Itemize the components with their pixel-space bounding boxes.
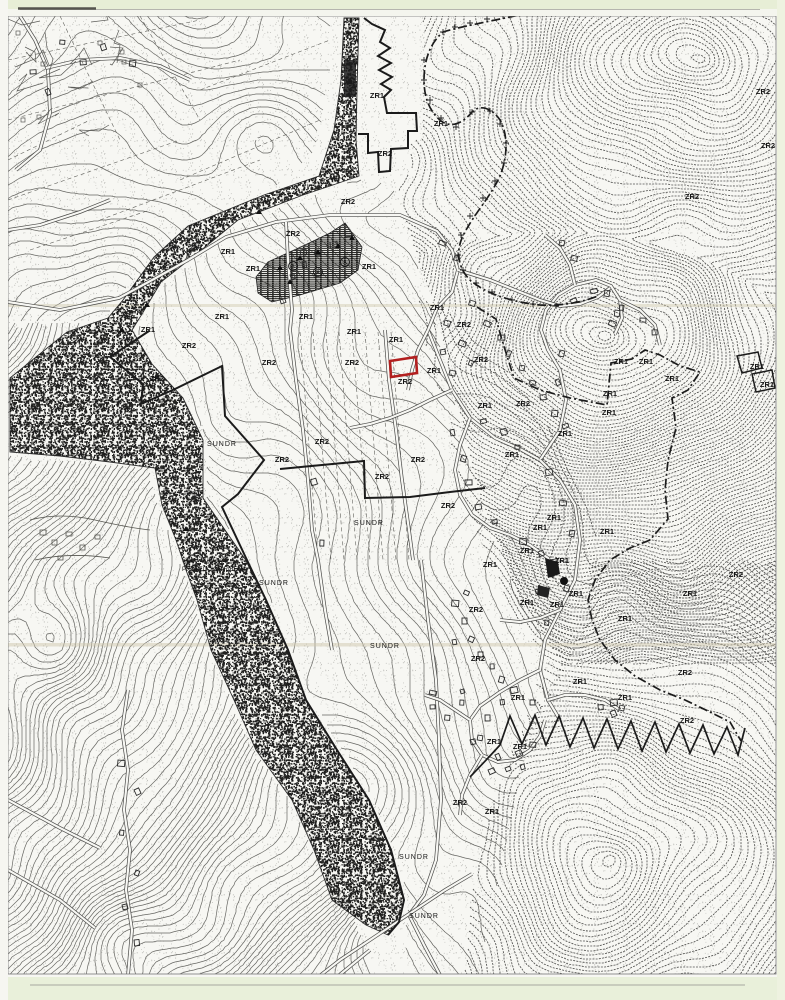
- svg-text:ZR2: ZR2: [378, 149, 392, 158]
- svg-text:ZR1: ZR1: [487, 737, 501, 746]
- svg-text:ZR2: ZR2: [516, 399, 530, 408]
- svg-text:SUNDR: SUNDR: [409, 913, 439, 920]
- svg-text:ZR2: ZR2: [150, 374, 164, 383]
- svg-text:ZR1: ZR1: [614, 357, 628, 366]
- svg-text:ZR2: ZR2: [756, 87, 770, 96]
- svg-text:ZR2: ZR2: [341, 197, 355, 206]
- svg-text:ZR1: ZR1: [569, 589, 583, 598]
- svg-text:ZR2: ZR2: [453, 798, 467, 807]
- svg-text:ZR2: ZR2: [685, 192, 699, 201]
- svg-text:ZR1: ZR1: [520, 598, 534, 607]
- svg-text:SUNDR: SUNDR: [207, 441, 237, 448]
- svg-text:ZR2: ZR2: [457, 320, 471, 329]
- svg-text:ZR1: ZR1: [215, 312, 229, 321]
- svg-text:ZR1: ZR1: [602, 408, 616, 417]
- svg-text:ZR2: ZR2: [441, 501, 455, 510]
- svg-text:ZR1: ZR1: [513, 742, 527, 751]
- svg-text:SUNDR: SUNDR: [399, 854, 429, 861]
- svg-text:ZR2: ZR2: [469, 605, 483, 614]
- svg-text:ZR2: ZR2: [398, 377, 412, 386]
- svg-text:ZR2: ZR2: [315, 437, 329, 446]
- svg-text:ZR2: ZR2: [262, 358, 276, 367]
- svg-text:PROTECCION RIBERA: PROTECCION RIBERA: [182, 567, 246, 573]
- svg-text:ZR1: ZR1: [347, 327, 361, 336]
- svg-text:ZR1: ZR1: [141, 325, 155, 334]
- svg-text:ZR2: ZR2: [411, 455, 425, 464]
- svg-text:ZR1: ZR1: [683, 589, 697, 598]
- svg-text:ZR1: ZR1: [600, 527, 614, 536]
- svg-text:ZR1: ZR1: [550, 600, 564, 609]
- svg-text:ZR1: ZR1: [555, 556, 569, 565]
- svg-text:ZR1: ZR1: [639, 357, 653, 366]
- svg-text:ZR1: ZR1: [760, 380, 774, 389]
- svg-text:ZR1: ZR1: [434, 119, 448, 128]
- svg-text:ZR1: ZR1: [389, 335, 403, 344]
- svg-text:ZR1: ZR1: [618, 693, 632, 702]
- svg-text:ZR1: ZR1: [483, 560, 497, 569]
- svg-text:ZR1: ZR1: [665, 374, 679, 383]
- svg-text:ZR2: ZR2: [474, 355, 488, 364]
- svg-text:ZR1: ZR1: [485, 807, 499, 816]
- svg-text:ZR1: ZR1: [558, 429, 572, 438]
- svg-text:ZR1: ZR1: [547, 513, 561, 522]
- svg-text:SUNDR: SUNDR: [259, 580, 289, 587]
- svg-text:ZR1: ZR1: [427, 366, 441, 375]
- svg-text:ZR1: ZR1: [299, 312, 313, 321]
- svg-text:ZR2: ZR2: [471, 654, 485, 663]
- svg-text:ZR2: ZR2: [375, 472, 389, 481]
- svg-text:ZR1: ZR1: [533, 523, 547, 532]
- svg-text:ZR1: ZR1: [430, 303, 444, 312]
- svg-text:ZR1: ZR1: [362, 262, 376, 271]
- svg-text:ZR2: ZR2: [286, 229, 300, 238]
- svg-text:SUNDR: SUNDR: [370, 643, 400, 650]
- svg-text:ZR2: ZR2: [275, 455, 289, 464]
- svg-text:ZR2: ZR2: [761, 141, 775, 150]
- svg-text:SUNDR: SUNDR: [354, 520, 384, 527]
- svg-text:ZR1: ZR1: [370, 91, 384, 100]
- svg-text:ZR1: ZR1: [750, 362, 764, 371]
- svg-text:ZR1: ZR1: [478, 401, 492, 410]
- svg-text:ZR1: ZR1: [618, 614, 632, 623]
- svg-text:ZR1: ZR1: [573, 677, 587, 686]
- svg-text:ZR1: ZR1: [246, 264, 260, 273]
- svg-text:ZR1: ZR1: [511, 693, 525, 702]
- svg-text:ZR2: ZR2: [678, 668, 692, 677]
- svg-text:ZR1: ZR1: [603, 389, 617, 398]
- svg-text:ZR2: ZR2: [680, 716, 694, 725]
- svg-text:SOLO PUBLICO: SOLO PUBLICO: [182, 558, 227, 564]
- svg-text:ZR2: ZR2: [345, 358, 359, 367]
- svg-text:ZR1: ZR1: [505, 450, 519, 459]
- svg-text:ZR2: ZR2: [182, 341, 196, 350]
- svg-text:ZR2: ZR2: [729, 570, 743, 579]
- svg-text:ZR1: ZR1: [520, 546, 534, 555]
- svg-text:ZR1: ZR1: [221, 247, 235, 256]
